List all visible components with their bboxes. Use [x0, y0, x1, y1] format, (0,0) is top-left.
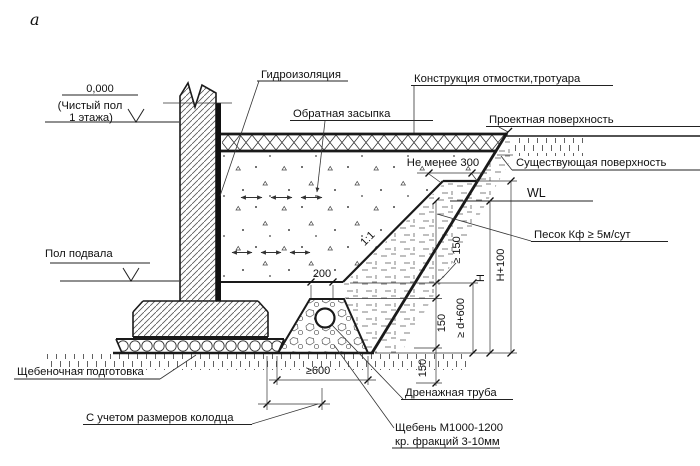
basement-floor-label: Пол подвала: [45, 248, 113, 260]
rubble-bed: [116, 339, 284, 353]
foundation-footing: [133, 301, 268, 337]
figure-index-label: а: [30, 10, 40, 29]
dim-H100: H+100: [495, 249, 507, 282]
existing-surface-callout: Существующая поверхность: [516, 157, 666, 169]
zero-level-note-2: 1 этажа): [69, 112, 113, 124]
dim-150-bottom: 150: [417, 359, 429, 377]
pavement-callout: Конструкция отмостки,тротуара: [414, 73, 581, 85]
dim-ge600: ≥600: [306, 365, 330, 377]
zero-level-value: 0,000: [86, 83, 114, 95]
dim-200: 200: [313, 268, 331, 280]
dim-min300: Не менее 300: [407, 157, 479, 169]
well-size-note: С учетом размеров колодца: [86, 412, 234, 424]
backfill-callout: Обратная засыпка: [293, 108, 391, 120]
dim-H: H: [475, 274, 487, 282]
dim-ge-d600: ≥ d+600: [455, 298, 467, 338]
pavement-slab: [221, 134, 506, 151]
dim-150-trench: 150: [436, 314, 448, 332]
diagram-canvas: а 0,000 (Чистый пол 1 этажа) Пол подвала…: [0, 0, 700, 466]
basement-floor-mark: [50, 263, 179, 281]
gravel-spec-line2: кр. фракций 3-10мм: [395, 436, 500, 448]
drawing-page: а 0,000 (Чистый пол 1 этажа) Пол подвала…: [0, 0, 700, 466]
level-arrow-icon: [128, 109, 144, 122]
rubble-prep-callout: Щебеночная подготовка: [17, 366, 144, 378]
existing-ground-hatch: [512, 138, 584, 156]
design-surface-callout: Проектная поверхность: [489, 114, 614, 126]
gravel-spec-line1: Щебень М1000-1200: [395, 422, 503, 434]
drain-pipe-callout: Дренажная труба: [405, 387, 497, 399]
water-level-label: WL: [527, 186, 546, 200]
waterproofing-callout: Гидроизоляция: [261, 69, 341, 81]
level-arrow-icon: [123, 268, 139, 281]
dim-ge150: ≥ 150: [451, 236, 463, 263]
sand-spec-callout: Песок Кф ≥ 5м/сут: [534, 229, 631, 241]
zero-level-note-1: (Чистый пол: [58, 100, 123, 112]
waterproofing-layer: [216, 103, 221, 301]
